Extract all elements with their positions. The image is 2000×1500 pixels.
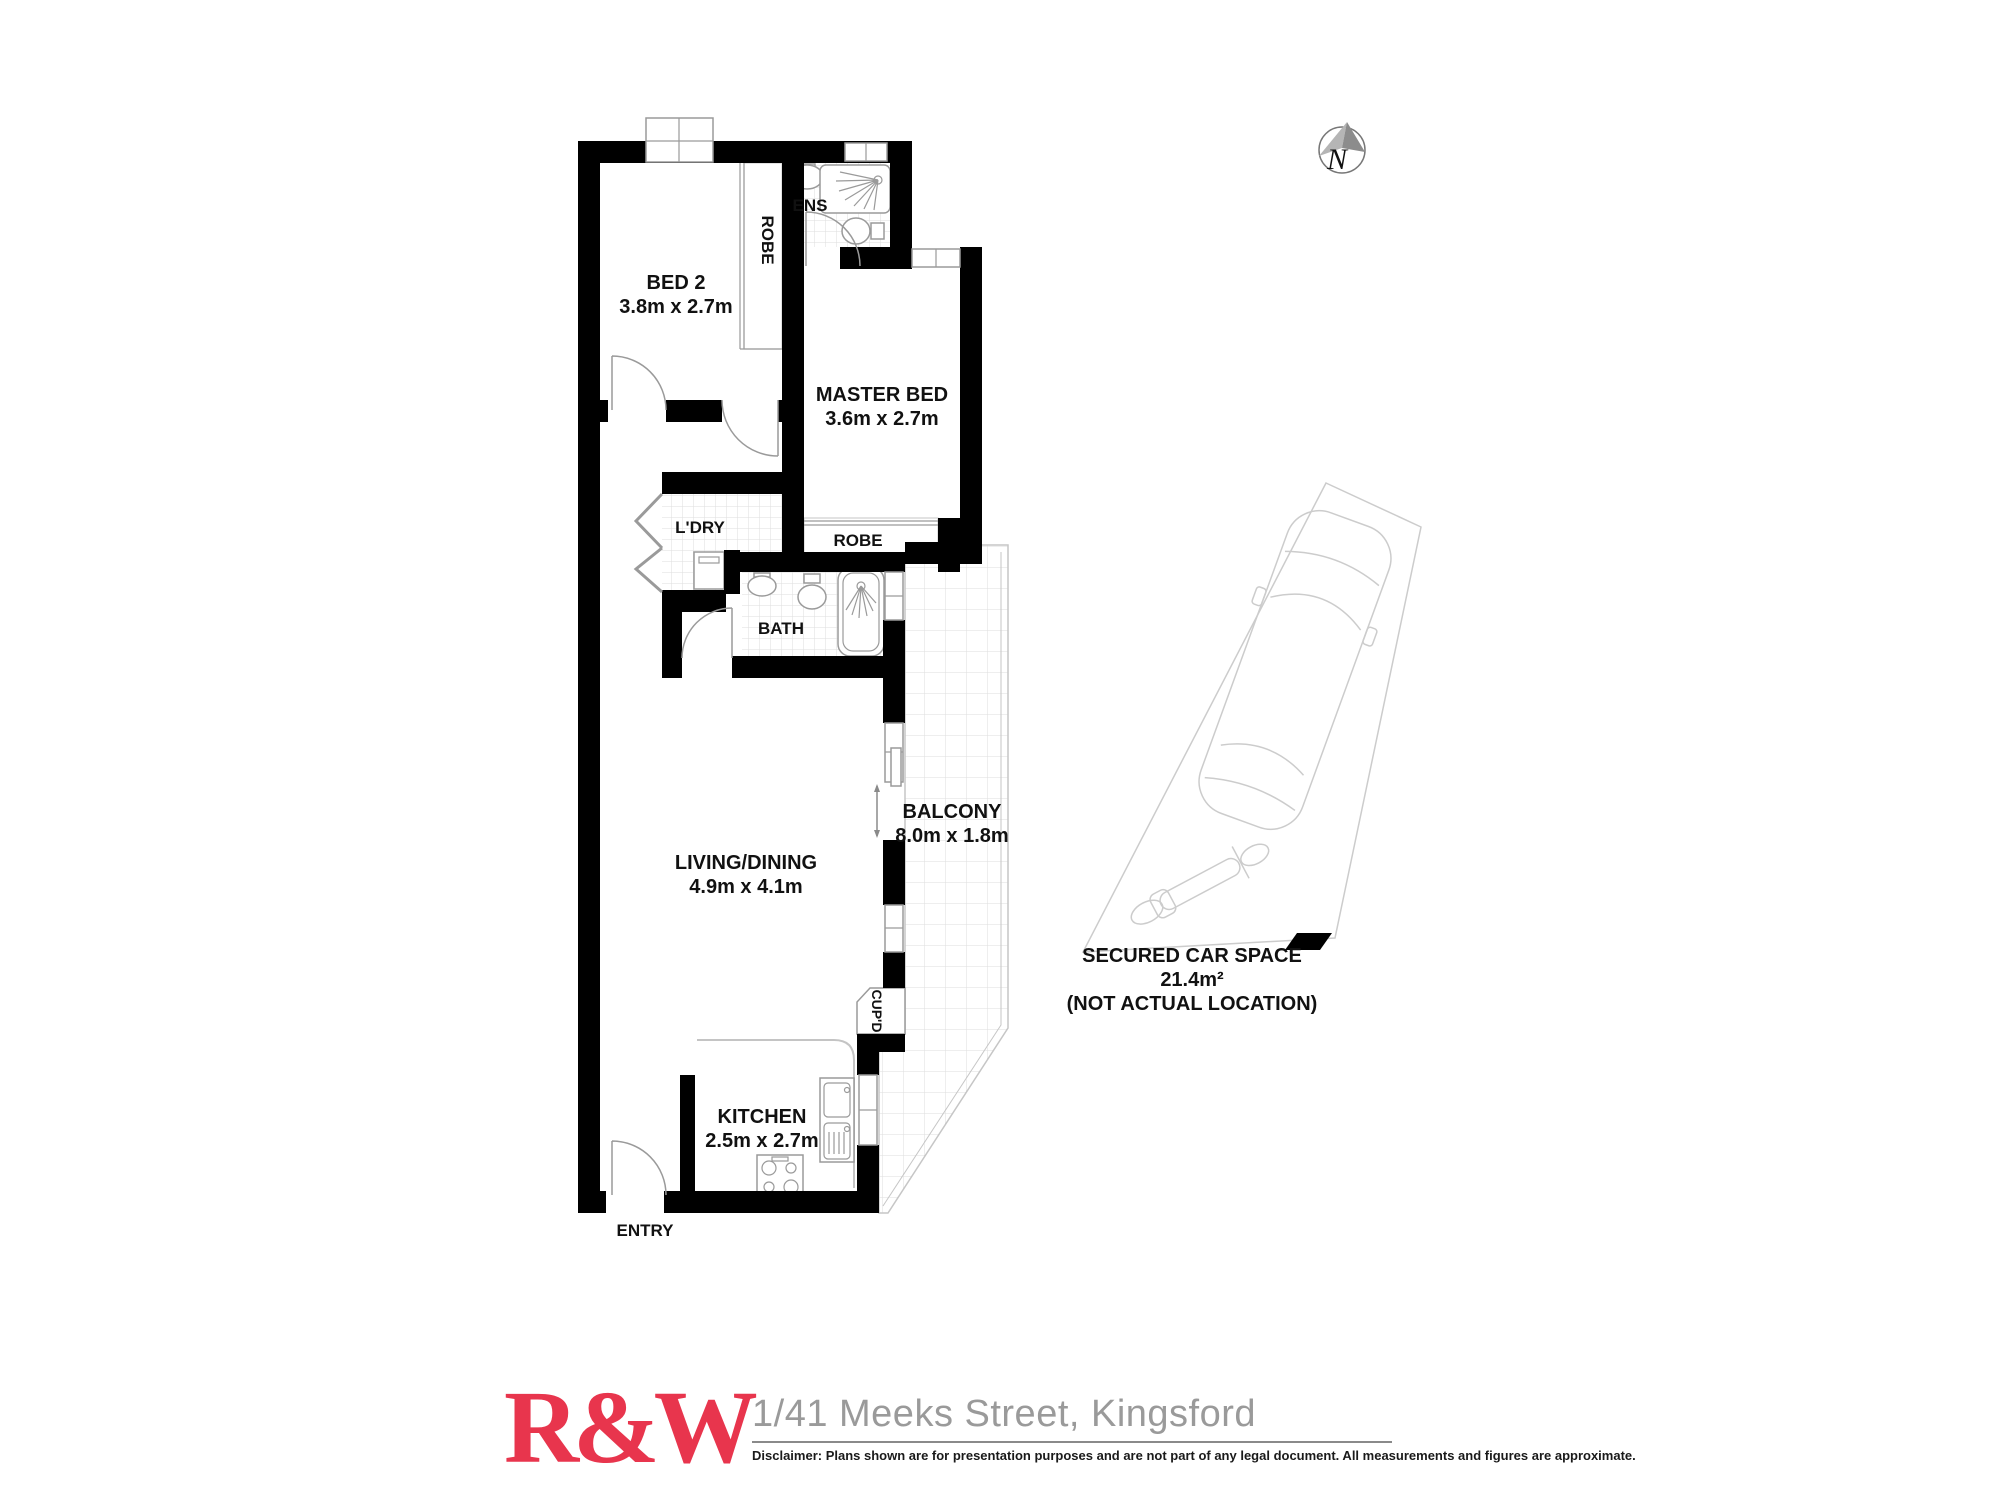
washing-machine (694, 552, 724, 589)
bed2-dims: 3.8m x 2.7m (619, 296, 732, 318)
wall-segment (782, 163, 804, 572)
address-divider-line (752, 1441, 1392, 1443)
north-compass: N (1319, 122, 1365, 176)
kitchen-window (859, 1075, 877, 1145)
car-space-outline (1083, 483, 1421, 952)
living-dims: 4.9m x 4.1m (689, 876, 802, 898)
living-label: LIVING/DINING (675, 852, 817, 874)
bath-window (885, 572, 903, 620)
wall-segment (960, 247, 982, 542)
agency-logo: R&W (504, 1376, 752, 1480)
ens-window (845, 143, 887, 161)
entry-label: ENTRY (617, 1221, 675, 1240)
wall-segment (666, 400, 722, 422)
ldry-label: L'DRY (675, 518, 725, 537)
cupd-label: CUP'D (869, 990, 885, 1033)
stove (757, 1155, 803, 1195)
compass-north-label: N (1326, 143, 1349, 176)
entry-door (612, 1141, 666, 1195)
wall-segment (600, 400, 608, 422)
wall-segment (778, 400, 786, 422)
motorbike-illustration (1124, 832, 1277, 936)
balcony-dims: 8.0m x 1.8m (895, 825, 1008, 847)
wall-segment (662, 472, 782, 494)
wall-segment (578, 1191, 606, 1213)
kitchen-sink (820, 1078, 854, 1162)
wall-segment (578, 141, 600, 1213)
bath-label: BATH (758, 619, 804, 638)
kitchen-dims: 2.5m x 2.7m (705, 1130, 818, 1152)
master-robe-label: ROBE (833, 531, 882, 550)
wall-segment (662, 590, 682, 678)
floorplan-drawing: N BED 2 3.8m x 2.7m ROBE ENS MASTER BED … (0, 0, 2000, 1500)
disclaimer-text: Disclaimer: Plans shown are for presenta… (752, 1448, 1636, 1463)
wall-segment (664, 1191, 879, 1213)
property-address: 1/41 Meeks Street, Kingsford (752, 1393, 1256, 1436)
kitchen-label: KITCHEN (718, 1106, 807, 1128)
living-window-lower (885, 905, 903, 952)
ens-label: ENS (793, 196, 828, 215)
car-space (1083, 483, 1421, 952)
bed2-label: BED 2 (647, 272, 706, 294)
car-illustration (1180, 498, 1410, 842)
wall-segment (732, 656, 905, 678)
car-space-area: 21.4m² (1160, 969, 1224, 991)
car-space-note: (NOT ACTUAL LOCATION) (1067, 993, 1318, 1015)
bath-door (682, 608, 732, 658)
floorplan-page: N BED 2 3.8m x 2.7m ROBE ENS MASTER BED … (0, 0, 2000, 1500)
wall-segment (857, 1052, 879, 1075)
wall-segment (857, 1034, 905, 1052)
wall-segment (680, 1075, 695, 1193)
hall-door (722, 400, 778, 456)
bed2-door (612, 356, 666, 410)
car-space-title: SECURED CAR SPACE (1082, 945, 1302, 967)
balcony-label: BALCONY (903, 801, 1003, 823)
wall-segment (883, 952, 905, 988)
wall-segment (740, 552, 905, 572)
master-label: MASTER BED (816, 384, 948, 406)
ens-shower (820, 165, 890, 213)
bed2-robe-label: ROBE (758, 215, 777, 264)
master-window (912, 249, 960, 267)
wall-segment (883, 840, 905, 905)
wall-segment (890, 141, 912, 269)
wall-segment (883, 620, 905, 723)
wall-segment (938, 518, 960, 572)
master-dims: 3.6m x 2.7m (825, 408, 938, 430)
bed2-window (646, 118, 713, 162)
bathtub (838, 568, 884, 656)
wall-segment (724, 550, 740, 594)
ldry-bifold-doors (636, 494, 662, 592)
